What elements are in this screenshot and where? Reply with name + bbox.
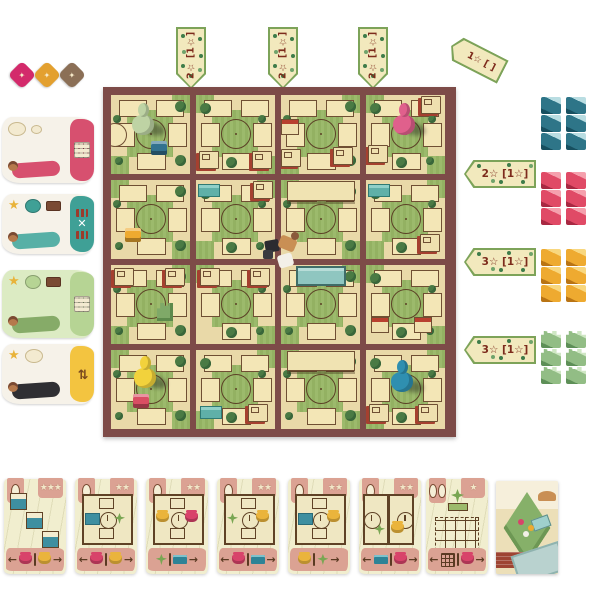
star-icon: ★ [8,200,20,212]
room-square [241,498,256,509]
green-blocks-block [541,331,561,348]
score-banner-corner[interactable]: 1☆ [ ] [445,34,508,83]
yellow-blocks-stack-2[interactable] [566,249,586,303]
garden-plot [411,355,439,372]
bush-icon [258,115,266,123]
mat-action-panel[interactable]: ⇄ [70,346,94,402]
star-icons: ★★ [186,484,200,493]
garden-plot [423,293,442,317]
crate-piece[interactable] [252,151,272,169]
score-banner-top-2[interactable]: 2☆ [1☆] [268,27,298,89]
arrow-left-icon: ← [8,554,17,565]
figure-head [291,232,299,240]
pawn-base [132,115,154,135]
character-head [8,161,18,171]
card-1[interactable]: ★★★←→ [4,479,66,574]
bush-icon [370,103,381,114]
crate-piece[interactable] [333,147,353,165]
bush-icon [226,412,237,423]
bush-icon [396,242,407,253]
game-board[interactable] [103,87,456,437]
bush-icon [175,186,186,197]
arrow-left-icon: ← [362,554,371,565]
green-blocks-block [566,331,586,348]
yellow-blocks-block [566,267,586,284]
crate-piece[interactable] [253,181,273,199]
yellow-blocks-block [541,267,561,284]
room-square [99,528,114,539]
board-tile-r3c2[interactable] [281,350,360,429]
pawn-head [140,356,151,370]
pool-icon [251,555,265,564]
card-4[interactable]: ★★←→ [217,479,279,574]
green-blocks-block [566,349,586,366]
room-pool-icon [85,513,100,525]
crate-piece[interactable] [165,268,185,286]
pool-square-icon [26,512,43,529]
pink-blocks-stack-2[interactable] [566,172,586,226]
garden-plot [116,293,135,317]
bush-icon [113,370,121,378]
garden-plot [286,208,305,232]
pool-icon [374,555,388,564]
garden-plot [201,293,220,317]
divider [34,553,36,566]
crate-piece[interactable] [368,145,388,163]
bush-icon [345,240,356,251]
pedestal [448,503,468,511]
crate-piece[interactable] [248,404,268,422]
mat-action-panel[interactable] [70,119,94,181]
bush-icon [115,242,123,250]
green-blocks-block [541,367,561,384]
garden-circle [221,289,251,319]
yellow-player-mat[interactable]: ⇄★ [2,344,94,404]
room-diagram [82,494,133,545]
pawn-head [397,360,408,374]
brown-token[interactable]: ✦ [58,61,86,89]
card-trade-footer: → [290,548,348,571]
teal-blocks-block [541,97,561,114]
teal-blocks-block [566,97,586,114]
bush-icon [258,200,266,208]
arrow-left-icon: ← [220,554,229,565]
bush-icon [285,412,293,420]
bush-icon [113,285,121,293]
figure-case [263,250,273,259]
board-tile-r1c0[interactable] [111,180,190,259]
garden-plot [201,378,220,402]
mat-action-panel[interactable]: ✕ [70,196,94,252]
blue-building-block[interactable] [151,141,167,155]
swap-arrows-icon: ⇄ [75,369,90,380]
pink-token[interactable]: ✦ [8,61,36,89]
character-head [8,232,18,242]
pink-pot-icon [461,555,474,564]
board-tile-r3c1[interactable] [196,350,275,429]
arrow-right-icon: → [53,554,62,565]
plant-icon [317,554,328,565]
garden-circle [306,374,336,404]
garden-plot [411,185,439,202]
room-pink-pot-icon [185,513,198,522]
dots-icon [76,231,88,239]
pink-blocks-block [566,172,586,189]
token-emblem-icon: ✦ [19,70,26,79]
deck-art-card[interactable] [496,481,558,574]
pinkblk-building-block[interactable] [133,394,149,408]
badge-icon [25,199,41,213]
garden-plot [423,378,442,402]
bush-icon [115,412,123,420]
green-blocks-stack-1[interactable] [541,331,561,385]
garden-plot [307,238,336,255]
garden-plot [253,208,272,232]
crate-piece[interactable] [420,234,440,252]
star-icons: ★★ [328,484,342,493]
mat-bonus-icons: ★ [8,275,61,289]
score-banner-right-3[interactable]: 3☆ [1☆] [464,336,536,364]
card-trade-footer: ←→ [361,548,419,571]
garden-plot [307,408,336,425]
garden-plot [289,100,317,117]
garden-plot [338,123,357,147]
grass-patch [196,241,214,259]
divider [247,553,249,566]
bush-icon [113,115,121,123]
bush-icon [175,101,186,112]
garden-circle [391,204,421,234]
bush-icon [200,358,211,369]
mat-bonus-icons: ★ [8,199,61,213]
arrow-right-icon: → [476,554,485,565]
pawn-base [393,115,415,135]
card-trade-footer: ←→ [6,548,64,571]
stand-piece[interactable] [281,119,299,135]
figure-legs [276,252,294,269]
board-tile-r2c3[interactable] [366,265,445,344]
green-blocks-stack-2[interactable] [566,331,586,385]
score-banner-top-1[interactable]: 2☆ [1☆] [176,27,206,89]
green-player-mat[interactable]: ★ [2,270,94,338]
score-banner-right-1[interactable]: 2☆ [1☆] [464,160,536,188]
green-pawn[interactable] [131,103,155,137]
token-emblem-icon: ✦ [69,70,76,79]
garden-circle [306,119,336,149]
garden-plot [286,378,305,402]
star-icons: ★★ [115,484,129,493]
teal-blocks-block [566,133,586,150]
gourd-icon [429,484,437,498]
garden-plot [253,378,272,402]
teal-player-mat[interactable]: ✕★ [2,194,94,254]
pool-square-icon [10,493,27,510]
chip-icon [46,277,61,287]
bush-icon [175,325,186,336]
character-head [8,316,18,326]
card-6[interactable]: ★★←→ [359,479,421,574]
bush-icon [396,327,407,338]
bush-icon [396,412,407,423]
arrow-right-icon: → [409,554,418,565]
bush-icon [200,103,211,114]
room-diagram [153,494,204,545]
stand-piece[interactable] [371,317,389,333]
yellow-token[interactable]: ✦ [33,61,61,89]
bush-icon [175,240,186,251]
bush-icon [428,200,436,208]
garden-circle [221,204,251,234]
garden-plot [307,323,336,340]
teal-blocks-block [541,133,561,150]
card-suit-tab [429,478,446,503]
thought-bubble-icon [25,349,43,363]
bush-icon [115,157,123,165]
room-plant-icon [227,513,238,524]
pink-blocks-stack-1[interactable] [541,172,561,226]
score-banner-top-3[interactable]: 2☆ [1☆] [358,27,388,89]
shelf-piece[interactable] [200,406,222,419]
garden-plot [286,293,305,317]
garden-plot [201,208,220,232]
room-square [241,528,256,539]
teal-blocks-stack-1[interactable] [541,97,561,151]
yellow-building-block[interactable] [125,228,141,242]
card-7[interactable]: ★←→ [426,479,488,574]
banner-score-label: 3☆ [1☆] [476,248,534,276]
pink-player-mat[interactable] [2,117,94,183]
bush-icon [175,155,186,166]
pink-blocks-block [541,208,561,225]
dial-icon [364,512,381,529]
pink-pot-icon [19,555,32,564]
board-tile-r1c3[interactable] [366,180,445,259]
star-icons: ★ [469,484,476,493]
shelf-piece[interactable] [198,184,220,197]
divider [105,553,107,566]
banner-score-label: 2☆ [1☆] [358,31,388,79]
garden-circle [221,119,251,149]
grass-patch [366,241,384,259]
pawn-base [391,372,413,392]
garden-plot [253,123,272,147]
board-tile-r0c0[interactable] [111,95,190,174]
board-tile-r3c0[interactable] [111,350,190,429]
teal-blocks-stack-2[interactable] [566,97,586,151]
plant-icon [156,554,167,565]
garden-plot [371,123,390,147]
bush-icon [345,101,356,112]
crate-piece[interactable] [199,151,219,169]
card-trade-footer: → [148,548,206,571]
room-diagram [224,494,275,545]
pink-pot-icon [232,555,245,564]
pool-square-icon [42,531,59,548]
banner-score-label: 2☆ [1☆] [476,160,534,188]
pawn-head [138,103,149,117]
pawn-base [134,368,156,388]
card-2[interactable]: ★★←→ [75,479,137,574]
bush-icon [258,370,266,378]
card-trade-footer: ←→ [219,548,277,571]
star-icon: ★ [8,350,20,362]
garden-plot [168,208,187,232]
pink-pawn[interactable] [392,103,416,137]
garden-plot [371,208,390,232]
arrow-right-icon: → [124,554,133,565]
gourd-icon [438,484,446,498]
character-head [8,382,18,392]
green-blocks-block [566,367,586,384]
bush-icon [283,200,291,208]
pink-blocks-block [541,172,561,189]
room-square [99,498,114,509]
garden-plot [137,408,166,425]
garden-plot [411,270,439,287]
garden-plot [201,123,220,147]
art-roof [538,491,556,501]
teal-pawn[interactable] [390,360,414,394]
crate-piece[interactable] [281,149,301,167]
garden-plot [137,323,166,340]
garden-plot [371,378,390,402]
pink-blocks-block [541,190,561,207]
garden-plot [241,100,269,117]
art-person [528,525,534,531]
bush-icon [285,327,293,335]
yellow-pot-icon [109,555,122,564]
star-icon: ★ [8,276,20,288]
arrow-left-icon: ← [79,554,88,565]
bush-icon [258,285,266,293]
grid-icon [74,296,90,312]
bush-icon [428,115,436,123]
garden-plot [423,123,442,147]
teal-blocks-block [566,115,586,132]
room-square [170,498,185,509]
half-room-diagram [388,494,414,545]
score-banner-right-2[interactable]: 3☆ [1☆] [464,248,536,276]
banner-score-label: 2☆ [1☆] [268,31,298,79]
pavilion-piece[interactable] [287,181,355,201]
bush-icon [113,200,121,208]
pink-pot-icon [90,555,103,564]
divider [313,553,315,566]
bush-icon [345,325,356,336]
teal-blocks-block [541,115,561,132]
bush-icon [226,327,237,338]
garden-plot [338,293,357,317]
token-emblem-icon: ✦ [44,70,51,79]
pavilion-piece[interactable] [287,351,355,371]
bush-icon [426,157,434,165]
pink-blocks-block [566,208,586,225]
garden-plot [338,208,357,232]
card-trade-footer: ←→ [428,548,486,571]
garden-circle [221,374,251,404]
garden-plot [168,378,187,402]
divider [457,553,459,566]
card-5[interactable]: ★★→ [288,479,350,574]
garden-plot [168,123,187,147]
star-icons: ★★ [257,484,271,493]
garden-plot [137,153,166,170]
bush-icon [115,327,123,335]
board-tile-r0c2[interactable] [281,95,360,174]
yellow-pawn[interactable] [133,356,157,390]
room-yellow-pot-icon [327,513,340,522]
art-person [523,531,529,537]
mat-bonus-icons: ★ [8,349,43,363]
yellow-blocks-block [566,249,586,266]
board-tile-r0c1[interactable] [196,95,275,174]
garden-circle [306,289,336,319]
yellow-blocks-block [541,285,561,302]
divider [390,553,392,566]
crate-piece[interactable] [114,268,134,286]
bush-icon [256,327,264,335]
bush-icon [283,285,291,293]
crate-piece[interactable] [200,268,220,286]
card-star-tab: ★ [461,478,485,498]
traveler-figure[interactable] [263,232,311,278]
bush-icon [283,370,291,378]
garden-plot [371,293,390,317]
garden-circle [306,204,336,234]
card-3[interactable]: ★★→ [146,479,208,574]
bush-icon [370,273,381,284]
star-icons: ★★ [399,484,413,493]
garden-circle [391,289,421,319]
shelf-piece[interactable] [368,184,390,197]
room-pool-icon [298,513,313,525]
arrow-left-icon: ← [429,554,438,565]
bush-icon [345,410,356,421]
stand-piece[interactable] [414,317,432,333]
board-tile-r0c3[interactable] [366,95,445,174]
room-yellow-pot-icon [391,524,404,533]
dots-icon [76,209,88,217]
thought-bubble-icon [31,125,42,134]
crate-piece[interactable] [369,404,389,422]
mat-action-panel[interactable] [70,272,94,336]
yellow-pot-icon [298,555,311,564]
room-square [312,498,327,509]
board-tile-r2c0[interactable] [111,265,190,344]
bush-icon [175,410,186,421]
garden-plot [137,238,166,255]
arrow-right-icon: → [330,554,339,565]
room-yellow-pot-icon [156,513,169,522]
bush-icon [428,285,436,293]
card-trade-footer: ←→ [77,548,135,571]
half-room-diagram [363,494,389,545]
yellow-blocks-stack-1[interactable] [541,249,561,303]
room-square [170,528,185,539]
board-tile-r3c3[interactable] [366,350,445,429]
crate-piece[interactable] [418,404,438,422]
yellow-blocks-block [566,285,586,302]
pink-pot-icon [394,555,407,564]
art-person [518,519,524,525]
crate-piece[interactable] [421,96,441,114]
room-square [312,528,327,539]
garden-plot [423,208,442,232]
bush-icon [428,370,436,378]
banner-score-label: 2☆ [1☆] [176,31,206,79]
arrow-right-icon: → [189,554,198,565]
pool-icon [173,555,187,564]
